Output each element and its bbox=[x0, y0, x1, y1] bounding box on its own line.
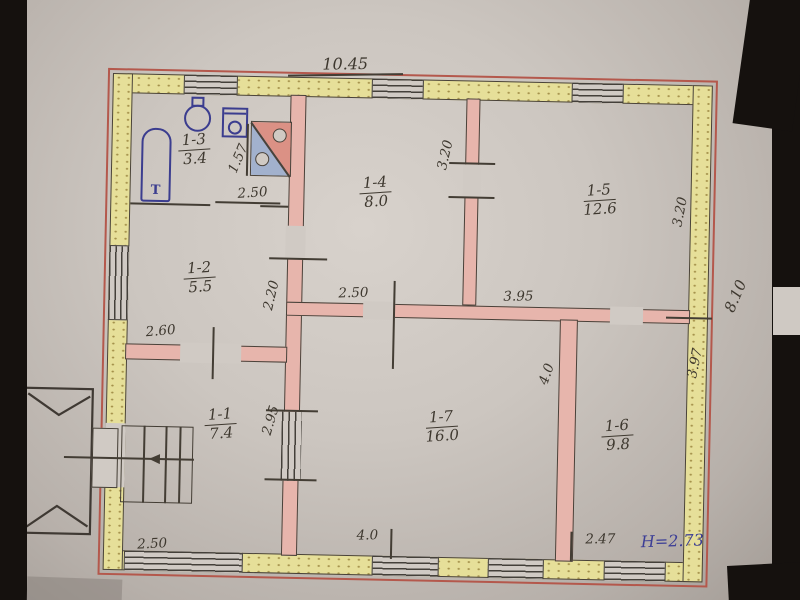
room-label-1-3: 1-3 3.4 bbox=[177, 131, 211, 168]
door-opening-room1-room7 bbox=[281, 412, 302, 481]
stairs-icon bbox=[120, 425, 194, 503]
photo-edge-left bbox=[0, 0, 27, 600]
bathtub-label: Т bbox=[142, 183, 168, 199]
room-area: 8.0 bbox=[360, 192, 393, 211]
floor-plan: Т 1-3 3.4 bbox=[103, 73, 713, 582]
photo-background: Т 1-3 3.4 bbox=[0, 0, 800, 600]
dim-top-total: 10.45 bbox=[322, 54, 368, 74]
dim-bottom-left: 2.50 bbox=[137, 535, 168, 552]
room-area: 3.4 bbox=[178, 149, 211, 168]
photo-edge-bottom-right bbox=[727, 562, 800, 600]
photo-edge-light-sliver bbox=[773, 287, 800, 335]
dim-bottom-right: 2.47 bbox=[585, 531, 615, 547]
window-bottom-1 bbox=[124, 550, 243, 572]
window-left bbox=[108, 245, 130, 320]
boiler-grate-line bbox=[224, 112, 246, 114]
room-label-1-6: 1-6 9.8 bbox=[600, 417, 634, 454]
dim-corridor-width: 2.50 bbox=[338, 285, 369, 302]
room-label-1-1: 1-1 7.4 bbox=[203, 406, 237, 443]
window-bottom-2 bbox=[372, 556, 439, 577]
window-top-3 bbox=[571, 83, 623, 104]
window-bottom-4 bbox=[603, 560, 665, 581]
room-area: 16.0 bbox=[425, 426, 459, 445]
door-opening-room7 bbox=[363, 301, 395, 320]
dim-bathroom-width: 2.50 bbox=[237, 184, 268, 202]
door-opening-room6 bbox=[610, 306, 643, 325]
room-label-1-7: 1-7 16.0 bbox=[424, 409, 460, 446]
room-label-1-5: 1-5 12.6 bbox=[582, 182, 618, 219]
room-area: 9.8 bbox=[602, 435, 635, 454]
stairs-arrow-icon bbox=[149, 454, 160, 464]
photo-shadow-bottom-left bbox=[27, 576, 123, 600]
room-area: 12.6 bbox=[583, 200, 617, 219]
dim-bottom-middle: 4.0 bbox=[357, 527, 379, 543]
window-top-2 bbox=[372, 78, 424, 99]
dim-hall-width: 3.95 bbox=[503, 288, 533, 304]
toilet-tank-icon bbox=[191, 97, 204, 107]
window-top-1 bbox=[184, 74, 238, 95]
bathtub-icon: Т bbox=[140, 128, 172, 203]
porch-icon bbox=[21, 386, 94, 535]
door-opening-room5 bbox=[462, 164, 481, 197]
door-opening-room2 bbox=[285, 226, 306, 259]
dim-room2-width: 2.60 bbox=[145, 322, 176, 340]
room-label-1-2: 1-2 5.5 bbox=[183, 260, 217, 297]
stove-icon bbox=[250, 121, 292, 177]
room-label-1-4: 1-4 8.0 bbox=[358, 174, 392, 211]
room-area: 5.5 bbox=[184, 277, 217, 296]
ceiling-height-note: Н=2.73 bbox=[641, 530, 705, 551]
room-area: 7.4 bbox=[205, 424, 238, 443]
door-opening-room1 bbox=[180, 342, 241, 363]
window-bottom-3 bbox=[488, 558, 544, 579]
